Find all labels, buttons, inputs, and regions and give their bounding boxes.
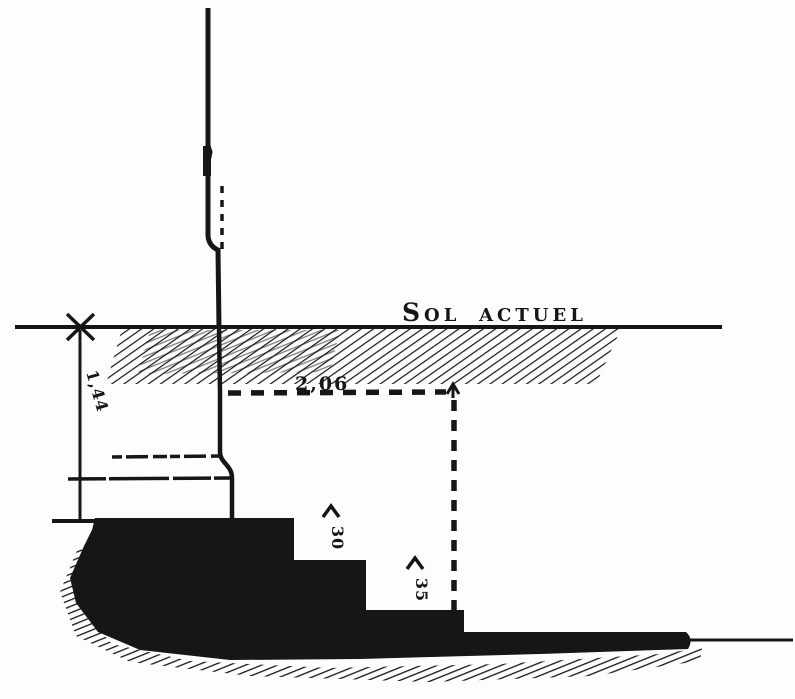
ground-label: Sol actuel <box>402 298 587 327</box>
ground: Sol actuel <box>15 298 722 384</box>
ground-hatch-dense-patch <box>138 330 340 374</box>
figure-canvas: Sol actuel 1,44 <box>0 0 795 699</box>
foundation-mass <box>70 518 691 660</box>
offset-corner-arrow-icon <box>447 384 459 398</box>
step-riser-upper-value: 30 <box>328 526 347 550</box>
wall-base <box>68 456 231 479</box>
step-riser-lower-value: 35 <box>412 578 431 602</box>
wall-moulding-upper <box>112 456 219 457</box>
pillar <box>207 8 232 519</box>
foundation: 30 35 <box>60 506 793 682</box>
wall-moulding-lower <box>68 478 231 479</box>
depth-value: 1,44 <box>82 368 112 415</box>
depth-dimension: 1,44 <box>52 314 112 521</box>
section-drawing: Sol actuel 1,44 <box>0 0 795 699</box>
step-caret-upper-icon <box>323 506 339 517</box>
step-caret-lower-icon <box>407 558 423 569</box>
offset-value: 2,06 <box>295 373 349 395</box>
